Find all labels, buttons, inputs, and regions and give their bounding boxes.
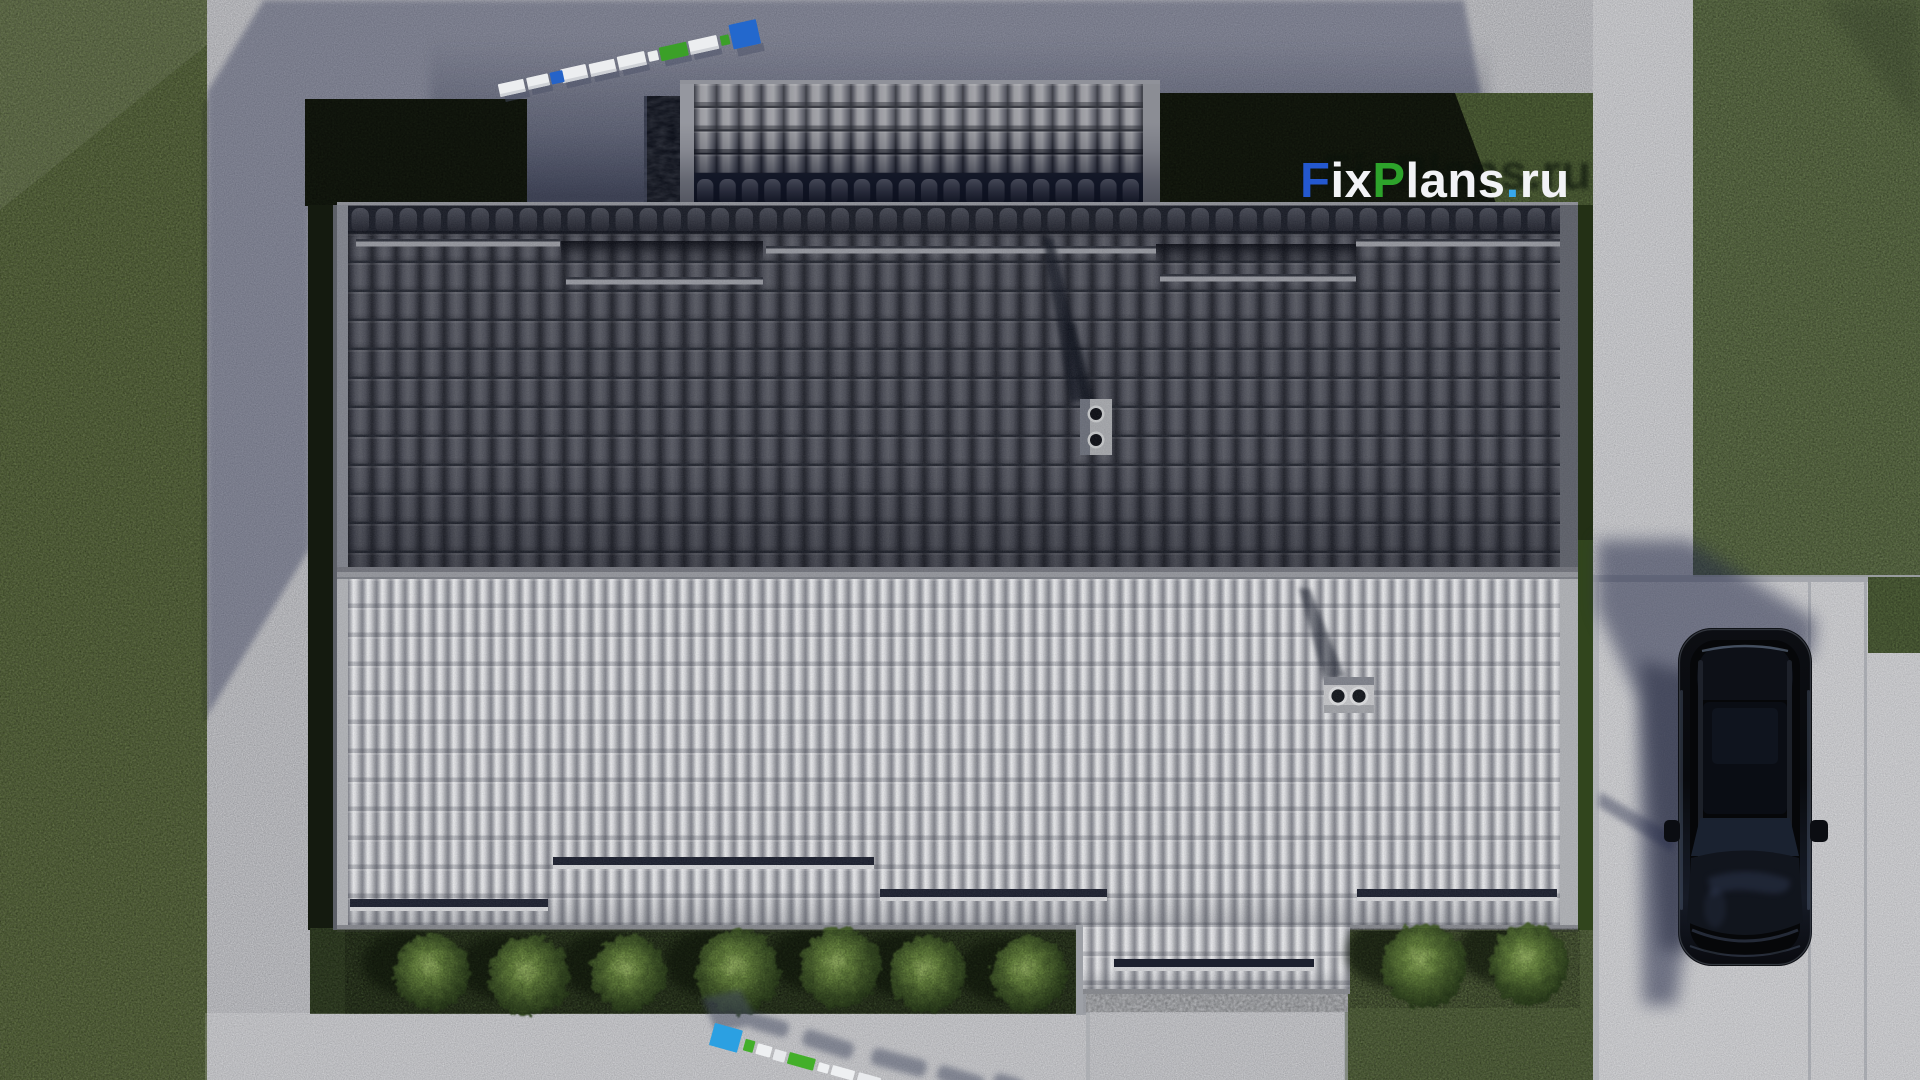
- svg-text:FixPlans.ru: FixPlans.ru: [1300, 154, 1570, 208]
